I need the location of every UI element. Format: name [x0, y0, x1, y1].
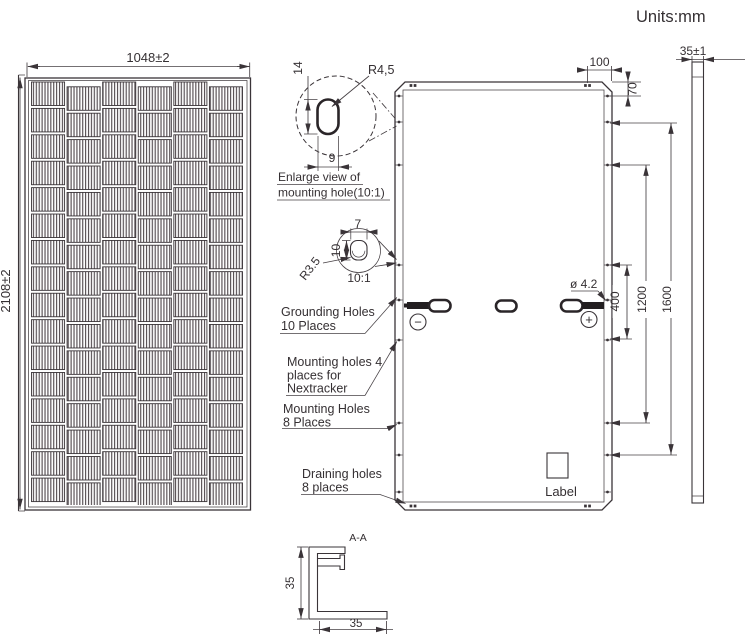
callout-draining-line2: 8 places: [302, 481, 349, 495]
solar-cell: [67, 245, 100, 269]
solar-cell: [209, 87, 242, 111]
grounding-width-dim-text: 7: [354, 217, 361, 231]
solar-cell: [103, 399, 136, 423]
mounting-slot-shape: [318, 100, 339, 135]
callout-grounding-line2: 10 Places: [281, 319, 336, 333]
solar-cell: [209, 166, 242, 190]
solar-cell: [103, 161, 136, 185]
front-view: 1048±2 2108±2: [0, 50, 251, 511]
frame-hole: [398, 299, 401, 302]
side-thickness-text: 35±1: [680, 44, 707, 58]
solar-cell: [67, 140, 100, 164]
solar-cell: [103, 240, 136, 264]
junction-box: − +: [404, 300, 604, 330]
solar-cell: [67, 272, 100, 296]
frame-hole: [398, 121, 401, 124]
detail-caption: Enlarge view of mounting hole(10:1): [277, 170, 390, 200]
dim-400-text: 400: [608, 291, 622, 311]
draining-hole: [588, 505, 591, 508]
draining-hole: [584, 505, 587, 508]
frame-hole: [606, 95, 609, 98]
negative-terminal-slot: [429, 300, 451, 312]
front-height-dimension: 2108±2: [0, 78, 20, 510]
solar-cell: [67, 351, 100, 375]
back-frame-outer: [395, 82, 612, 510]
side-thickness-dimension: 35±1: [676, 44, 745, 62]
draining-hole: [410, 84, 413, 87]
solar-cell: [138, 483, 171, 507]
solar-cell: [67, 87, 100, 111]
draining-hole: [414, 84, 417, 87]
solar-cell: [103, 452, 136, 476]
solar-cell: [209, 219, 242, 243]
solar-cell: [209, 272, 242, 296]
callout-mounting-line1: Mounting Holes: [283, 402, 370, 416]
callout-nextracker-line2: places for: [287, 369, 341, 383]
solar-cell: [103, 135, 136, 159]
solar-cell: [32, 161, 65, 185]
label-text: Label: [545, 484, 577, 499]
frame-hole: [606, 121, 609, 124]
section-height-dimension: 35: [285, 547, 308, 619]
solar-cell: [209, 456, 242, 480]
solar-cell: [174, 135, 207, 159]
back-frame-inner: [403, 90, 604, 502]
side-view: 35±1: [676, 44, 745, 503]
frame-hole: [398, 95, 401, 98]
callout-nextracker-line1: Mounting holes 4: [287, 355, 382, 369]
dim-1600-text: 1600: [660, 286, 674, 313]
solar-cell: [138, 166, 171, 190]
detail-caption-line1: Enlarge view of: [278, 170, 361, 184]
back-view: − + Label ø 4.2 100 70: [395, 55, 678, 510]
solar-cell: [209, 483, 242, 507]
solar-cell: [67, 404, 100, 428]
solar-cell: [67, 377, 100, 401]
solar-cell: [32, 452, 65, 476]
solar-cell: [138, 351, 171, 375]
solar-cell: [209, 113, 242, 137]
callout-draining-holes: Draining holes 8 places: [301, 467, 406, 504]
solar-cell: [32, 425, 65, 449]
technical-drawing-page: Units:mm 1048±2 2108±2: [0, 0, 755, 639]
solar-cell: [174, 214, 207, 238]
frame-cross-section-rib: [318, 555, 345, 570]
solar-cell: [103, 425, 136, 449]
solar-cell: [32, 267, 65, 291]
solar-cell: [103, 108, 136, 132]
slot-height-dim-text: 14: [291, 61, 305, 75]
positive-terminal-slot: [561, 300, 583, 312]
solar-cell: [209, 430, 242, 454]
solar-cell: [103, 82, 136, 106]
solar-cell: [138, 113, 171, 137]
frame-cross-section-outline: [309, 547, 387, 619]
solar-cell: [138, 219, 171, 243]
solar-cell: [67, 166, 100, 190]
callout-grounding-line1: Grounding Holes: [281, 305, 375, 319]
solar-cell: [209, 245, 242, 269]
section-width-dimension: 35: [313, 618, 393, 634]
solar-cell: [209, 404, 242, 428]
solar-cell: [174, 372, 207, 396]
callout-draining-line1: Draining holes: [302, 467, 382, 481]
solar-cell: [67, 219, 100, 243]
callout-nextracker-line3: Nextracker: [287, 382, 347, 396]
solar-panel-dimension-drawing: Units:mm 1048±2 2108±2: [0, 0, 755, 639]
frame-hole: [606, 491, 609, 494]
dim-1200-text: 1200: [635, 286, 649, 313]
draining-hole: [414, 505, 417, 508]
grounding-slot-arc: [352, 251, 365, 257]
section-aa-view: A-A 35 35: [285, 532, 393, 634]
solar-cell: [32, 478, 65, 502]
frame-holes: [396, 95, 612, 494]
solar-cell: [32, 320, 65, 344]
solar-cell: [103, 320, 136, 344]
solar-cell: [103, 188, 136, 212]
solar-cell: [103, 267, 136, 291]
solar-cell: [209, 192, 242, 216]
solar-cell: [32, 399, 65, 423]
hole-diameter-text: ø 4.2: [570, 277, 598, 291]
solar-cell: [103, 214, 136, 238]
side-profile-bar: [692, 62, 704, 503]
frame-hole: [606, 422, 609, 425]
solar-cell: [138, 140, 171, 164]
solar-cell: [67, 113, 100, 137]
front-width-dimension: 1048±2: [27, 50, 250, 77]
frame-hole: [398, 491, 401, 494]
callout-mounting-holes: Mounting Holes 8 Places: [282, 402, 397, 430]
hole-diameter-callout: ø 4.2: [570, 277, 606, 301]
solar-cell: [174, 399, 207, 423]
solar-cell: [174, 425, 207, 449]
detail-grounding-hole-view: 7 10 R3.5 10:1: [297, 217, 397, 285]
solar-cell: [138, 324, 171, 348]
solar-cell-grid: [32, 82, 243, 506]
solar-cell: [138, 404, 171, 428]
solar-cell: [67, 192, 100, 216]
frame-hole: [606, 339, 609, 342]
callout-mounting-line2: 8 Places: [283, 416, 331, 430]
draining-hole: [584, 84, 587, 87]
callout-grounding-holes: Grounding Holes 10 Places: [280, 298, 397, 334]
solar-cell: [138, 87, 171, 111]
solar-cell: [32, 372, 65, 396]
slot-radius-text: R4,5: [368, 63, 394, 77]
detail-mounting-hole-view: 14 9 R4,5 Enlarge view of mounting hole(…: [277, 61, 397, 200]
front-height-dim-text: 2108±2: [0, 269, 13, 312]
solar-cell: [67, 430, 100, 454]
solar-cell: [174, 82, 207, 106]
solar-cell: [174, 320, 207, 344]
front-width-dim-text: 1048±2: [126, 50, 169, 65]
grounding-radius-text: R3.5: [297, 254, 324, 283]
slot-width-dim-text: 9: [329, 151, 336, 165]
frame-hole: [398, 454, 401, 457]
solar-cell: [67, 483, 100, 507]
dim-100-text: 100: [589, 55, 609, 69]
solar-cell: [67, 298, 100, 322]
solar-cell: [209, 377, 242, 401]
draining-hole: [410, 505, 413, 508]
solar-cell: [32, 240, 65, 264]
solar-cell: [67, 324, 100, 348]
back-top-hole-dimension: 70: [610, 76, 642, 103]
units-note: Units:mm: [636, 8, 706, 26]
solar-cell: [174, 478, 207, 502]
solar-cell: [174, 108, 207, 132]
solar-cell: [209, 351, 242, 375]
solar-cell: [138, 456, 171, 480]
frame-hole: [398, 164, 401, 167]
center-slot: [496, 301, 517, 312]
solar-cell: [32, 293, 65, 317]
positive-cable-connector: [582, 302, 604, 309]
solar-cell: [67, 456, 100, 480]
dim-70-text: 70: [626, 82, 640, 96]
solar-cell: [138, 298, 171, 322]
solar-cell: [103, 293, 136, 317]
frame-hole: [606, 164, 609, 167]
negative-cable-connector: [407, 302, 429, 309]
solar-cell: [32, 108, 65, 132]
minus-symbol: −: [414, 315, 422, 330]
solar-cell: [32, 135, 65, 159]
solar-cell: [32, 346, 65, 370]
solar-cell: [174, 188, 207, 212]
solar-cell: [174, 346, 207, 370]
solar-cell: [32, 214, 65, 238]
frame-hole: [398, 264, 401, 267]
back-corner-offset-dimension: 100: [577, 55, 622, 83]
solar-cell: [174, 267, 207, 291]
grounding-scale-text: 10:1: [347, 271, 371, 285]
solar-cell: [32, 82, 65, 106]
frame-hole: [398, 422, 401, 425]
solar-cell: [103, 346, 136, 370]
solar-cell: [32, 188, 65, 212]
detail-circle: [337, 229, 381, 273]
frame-hole: [398, 339, 401, 342]
detail-caption-line2: mounting hole(10:1): [278, 186, 385, 200]
draining-hole-marks: [410, 84, 591, 507]
solar-cell: [138, 192, 171, 216]
solar-cell: [174, 452, 207, 476]
draining-hole: [588, 84, 591, 87]
solar-cell: [174, 240, 207, 264]
frame-hole: [606, 454, 609, 457]
section-height-text: 35: [285, 577, 297, 590]
solar-cell: [209, 298, 242, 322]
solar-cell: [174, 161, 207, 185]
plus-symbol: +: [585, 312, 593, 327]
solar-cell: [209, 324, 242, 348]
callout-labels: Grounding Holes 10 Places Mounting holes…: [280, 298, 406, 504]
label-sticker: [547, 453, 568, 478]
frame-hole: [606, 264, 609, 267]
callout-nextracker-holes: Mounting holes 4 places for Nextracker: [286, 342, 397, 396]
solar-cell: [138, 245, 171, 269]
solar-cell: [138, 430, 171, 454]
section-width-text: 35: [350, 618, 363, 630]
grounding-height-dim-text: 10: [329, 244, 343, 258]
solar-cell: [209, 140, 242, 164]
solar-cell: [103, 478, 136, 502]
section-title: A-A: [349, 532, 367, 544]
solar-cell: [174, 293, 207, 317]
solar-cell: [138, 377, 171, 401]
solar-cell: [103, 372, 136, 396]
solar-cell: [138, 272, 171, 296]
